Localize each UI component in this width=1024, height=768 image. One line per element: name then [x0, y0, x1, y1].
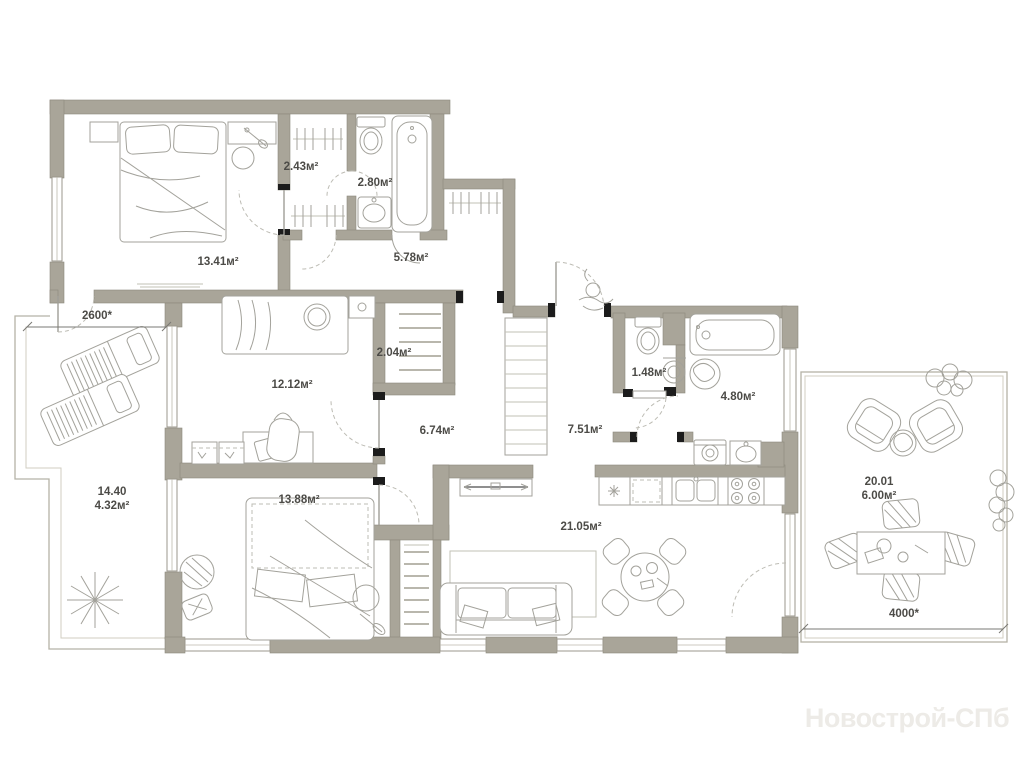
room-area-label-kitchen-living: 21.05м² [560, 521, 601, 533]
armchair [905, 395, 967, 456]
terrace-area: 6.00м² [862, 489, 897, 503]
terrace-number: 20.01 [862, 475, 897, 489]
terrace-table-set [823, 498, 976, 602]
hanger-rail-icon [291, 128, 345, 227]
nightstand [90, 122, 118, 142]
closet-shelves [399, 314, 441, 370]
spiky-plant-icon [67, 572, 123, 628]
floor-plan: 13.41м² 2.43м² 2.80м² 5.78м² 12.12м² 2.0… [0, 0, 1024, 768]
dimension-label-balcony: 2600* [82, 310, 112, 322]
balcony-number: 14.40 [95, 485, 130, 499]
room-area-label-closet: 2.04м² [377, 347, 412, 359]
room-area-label-bedroom-2: 12.12м² [271, 379, 312, 391]
chair [232, 147, 254, 169]
single-bed [222, 296, 348, 354]
room-area-label-wardrobe: 2.43м² [284, 161, 319, 173]
room-area-label-wc: 1.48м² [632, 367, 667, 379]
room-area-label-bedroom-1: 13.41м² [197, 256, 238, 268]
dining-table [599, 536, 688, 619]
desk [228, 122, 276, 150]
room-area-label-bathroom-2: 4.80м² [721, 391, 756, 403]
pouf-icon [180, 555, 214, 589]
toy-boxes [192, 442, 244, 464]
dimension-line-left [23, 322, 171, 331]
laundry-sink-icon [730, 441, 761, 465]
room-area-label-bedroom-3: 13.88м² [278, 494, 319, 506]
windows [52, 177, 796, 651]
washbasin-icon [358, 197, 391, 228]
balcony-area: 4.32м² [95, 499, 130, 513]
room-area-label-hallway: 5.78м² [394, 252, 429, 264]
laundry-basket-icon [690, 359, 720, 389]
cushion-icon [180, 592, 213, 621]
floor-plan-drawing [0, 0, 1024, 768]
kitchen-counter [599, 477, 785, 505]
watermark: Новострой-СПб [794, 703, 1020, 734]
toilet-icon [635, 317, 661, 354]
potted-plant-icon [890, 430, 916, 456]
bathtub-icon [392, 116, 432, 232]
room-area-label-bathroom-1: 2.80м² [358, 177, 393, 189]
double-bed [246, 498, 374, 640]
wardrobe-rails [404, 545, 429, 624]
toilet-icon [357, 117, 385, 154]
tv-sideboard [460, 479, 532, 496]
bathtub-icon [690, 314, 780, 355]
armchair [843, 394, 905, 456]
radiator [137, 284, 203, 287]
bag-icon [265, 413, 301, 463]
nightstand [349, 296, 375, 318]
dimension-label-terrace: 4000* [889, 608, 919, 620]
entry-wardrobe [505, 318, 547, 455]
washing-machine-icon [694, 440, 726, 465]
sofa [440, 583, 572, 635]
coat-rack-icon [449, 192, 501, 214]
terrace-label: 20.01 6.00м² [862, 475, 897, 503]
room-area-label-corridor: 6.74м² [420, 425, 455, 437]
double-bed [120, 122, 226, 242]
room-area-label-entry-hall: 7.51м² [568, 424, 603, 436]
balcony-label: 14.40 4.32м² [95, 485, 130, 513]
dimension-line-right [799, 624, 1008, 633]
